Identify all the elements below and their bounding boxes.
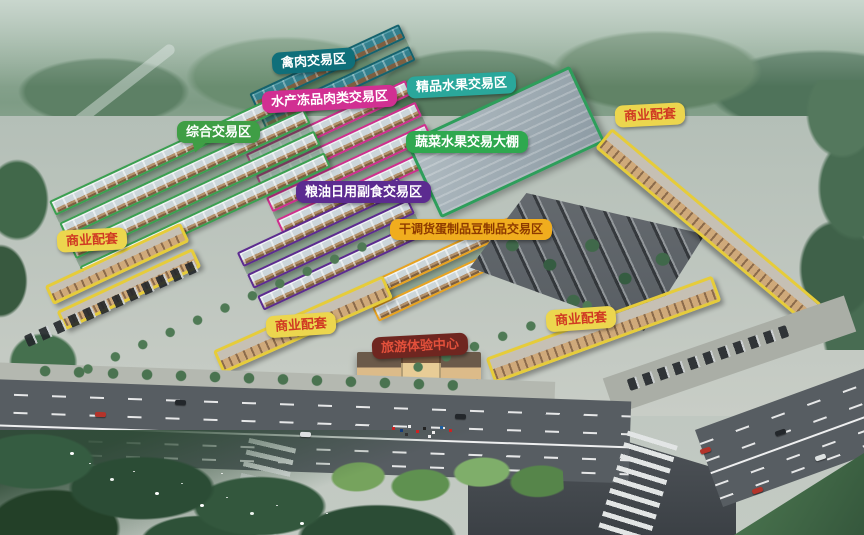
zone-label-commercial-left: 商业配套 [56,227,127,253]
car [95,412,106,418]
zone-label-commercial-top-right: 商业配套 [614,102,685,128]
trees-bottom-left [0,430,475,535]
pedestrians [392,427,395,430]
zone-label-grain-oil: 粮油日用副食交易区 [296,181,431,203]
car [175,400,186,406]
zone-label-comprehensive: 综合交易区 [177,121,260,143]
zone-label-dried-goods: 干调货蛋制品豆制品交易区 [390,219,552,240]
aerial-site-plan: 禽肉交易区 水产冻品肉类交易区 精品水果交易区 蔬菜水果交易大棚 综合交易区 粮… [0,0,864,535]
zone-label-vegetable-fruit-shed: 蔬菜水果交易大棚 [406,131,528,153]
car [455,414,466,420]
car [300,432,311,438]
bird-flock [70,452,74,455]
